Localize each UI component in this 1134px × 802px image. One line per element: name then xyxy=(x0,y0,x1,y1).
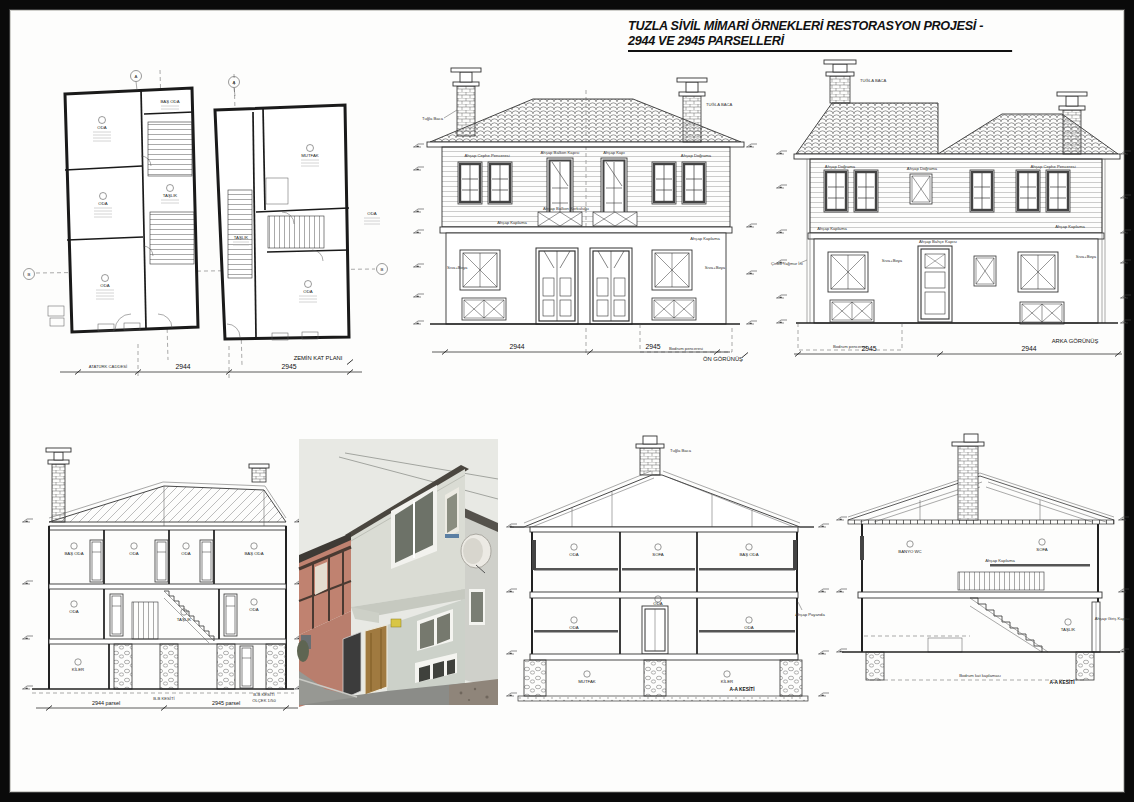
svg-text:ODA: ODA xyxy=(249,607,258,612)
sheet-title: TUZLA SİVİL MİMARİ ÖRNEKLERİ RESTORASYON… xyxy=(628,18,1012,52)
aa1-caption: A-A KESİTİ xyxy=(729,686,755,692)
front-dim-2945: 2945 xyxy=(645,343,660,350)
room-label: TAŞLIK xyxy=(1061,619,1076,632)
parcel-2944-walls xyxy=(48,88,198,332)
svg-text:SOFA: SOFA xyxy=(1036,547,1048,552)
room-label: ODA xyxy=(249,599,258,612)
panel-section-bb: BAŞ ODA ODA ODA BAŞ ODA ODA TAŞLIK ODA K… xyxy=(14,434,306,726)
annotation: Ahşap Doğrama xyxy=(907,166,938,171)
panel-front-elevation: Tuğla Baca TUĞLA BACA Ahşap Cephe Pencer… xyxy=(400,62,768,380)
annotation: Sıva+Boya xyxy=(447,265,468,270)
svg-text:ODA: ODA xyxy=(97,125,106,130)
svg-text:ODA: ODA xyxy=(569,552,578,557)
parcel-2945-walls xyxy=(215,105,349,340)
annotation: Çinko Yağmur İni xyxy=(771,261,803,266)
ground-floor-plan: A A B B ODA ODA ODA xyxy=(20,60,398,392)
bb-roof-vent xyxy=(249,464,269,482)
room-label: ODA xyxy=(181,543,190,556)
annotation: Ahşap Doğrama xyxy=(681,153,712,158)
annotation: Bodrum penceresi xyxy=(669,346,703,351)
bb-caption: B-B KESİTİ xyxy=(153,696,174,701)
room-label: BAŞ ODA xyxy=(739,544,758,557)
bb-scale-label: ÖLÇEK 1/50 xyxy=(252,698,276,703)
annotation: Ahşap Kaplama xyxy=(985,558,1015,563)
svg-text:ODA: ODA xyxy=(653,601,662,606)
aa2-roof xyxy=(848,473,1114,524)
room-label: BANYO WC xyxy=(898,541,921,554)
room-label: KİLER xyxy=(72,659,84,672)
svg-text:ODA: ODA xyxy=(129,551,138,556)
svg-text:TAŞLIK: TAŞLIK xyxy=(177,617,192,622)
svg-text:ODA: ODA xyxy=(569,625,578,630)
svg-text:TAŞLIK: TAŞLIK xyxy=(163,193,178,198)
aa2-structure xyxy=(858,524,1102,652)
svg-text:SOFA: SOFA xyxy=(652,552,664,557)
rear-dim-2944: 2944 xyxy=(1021,345,1036,352)
svg-text:KİLER: KİLER xyxy=(721,679,733,684)
annotation: Ahşap Payanda xyxy=(795,612,825,617)
axis-bubble: A xyxy=(131,71,142,91)
panel-site-photo xyxy=(299,439,498,705)
section-aa1: Tuğla Baca xyxy=(502,432,830,722)
chimney-label: TUĞLA BACA xyxy=(860,78,887,83)
drawing-sheet: TUZLA SİVİL MİMARİ ÖRNEKLERİ RESTORASYON… xyxy=(0,0,1134,802)
bb-scale-label: B-B KESİTİ xyxy=(253,692,274,697)
bb-chimney xyxy=(46,448,71,522)
bb-dim-2945: 2945 parsel xyxy=(212,700,240,706)
svg-text:ODA: ODA xyxy=(367,211,376,216)
svg-text:TAŞLIK: TAŞLIK xyxy=(1061,627,1076,632)
room-label: BAŞ ODA xyxy=(64,543,83,556)
annotation: Sıva+Boya xyxy=(1076,254,1097,259)
annotation: Ahşap Kaplama xyxy=(690,236,720,241)
paper: TUZLA SİVİL MİMARİ ÖRNEKLERİ RESTORASYON… xyxy=(9,9,1125,793)
panel-rear-elevation: TUĞLA BACA Ahşap Doğrama Ahşap Doğrama A… xyxy=(770,58,1132,380)
panel-ground-floor-plan: A A B B ODA ODA ODA xyxy=(20,60,398,392)
axis-bubble: A xyxy=(229,77,240,97)
rear-dim-2945: 2945 xyxy=(861,345,876,352)
room-label: KİLER xyxy=(721,671,733,684)
svg-text:BAŞ ODA: BAŞ ODA xyxy=(64,551,83,556)
annotation: Ahşap Doğrama xyxy=(825,164,856,169)
bb-dim-2944: 2944 parsel xyxy=(92,700,120,706)
chimney-label: TUĞLA BACA xyxy=(706,102,733,107)
plan-caption: ZEMİN KAT PLANI xyxy=(294,355,343,361)
axis-bubble: B xyxy=(24,269,35,280)
room-label: SOFA xyxy=(652,544,664,557)
svg-text:ODA: ODA xyxy=(303,289,312,294)
plan-dimension-line: ATATÜRK CADDESİ 2944 2945 xyxy=(60,344,362,378)
room-label: ODA xyxy=(569,544,578,557)
aa1-chimney xyxy=(636,436,664,475)
aa2-chimney xyxy=(952,434,984,520)
svg-text:A: A xyxy=(135,74,138,79)
section-bb: BAŞ ODA ODA ODA BAŞ ODA ODA TAŞLIK ODA K… xyxy=(14,434,306,726)
rear-chimney-left xyxy=(824,60,856,103)
svg-text:BAŞ ODA: BAŞ ODA xyxy=(244,551,263,556)
section-aa2: BANYO WC SOFA TAŞLIK Ahşap Kaplama Ahşap… xyxy=(830,434,1132,716)
rear-caption: ARKA GÖRÜNÜŞ xyxy=(1052,338,1099,344)
svg-text:BANYO WC: BANYO WC xyxy=(898,549,921,554)
annotation: Ahşap Cephe Penceresi xyxy=(1030,164,1075,169)
svg-text:BAŞ ODA: BAŞ ODA xyxy=(160,99,179,104)
annotation: Ahşap Giriş Kapısı xyxy=(1095,616,1130,621)
room-label: ODA xyxy=(364,211,380,224)
annotation: Ahşap Balkon Korkuluğu xyxy=(543,206,590,211)
svg-text:B: B xyxy=(28,272,31,277)
street-label: ATATÜRK CADDESİ xyxy=(89,364,127,369)
room-label: MUTFAK xyxy=(578,671,596,684)
annotation: Sıva+Boya xyxy=(882,258,903,263)
room-label: ODA xyxy=(69,601,78,614)
svg-text:A: A xyxy=(233,80,236,85)
svg-text:ODA: ODA xyxy=(100,283,109,288)
chimney-label: Tuğla Baca xyxy=(422,116,444,121)
room-label: ODA xyxy=(744,617,753,630)
annotation: Ahşap Cephe Penceresi xyxy=(464,153,509,158)
plan-dim-2944: 2944 xyxy=(175,363,190,370)
annotation: Ahşap Kapı xyxy=(603,150,625,155)
svg-text:BAŞ ODA: BAŞ ODA xyxy=(739,552,758,557)
panel-section-aa2: BANYO WC SOFA TAŞLIK Ahşap Kaplama Ahşap… xyxy=(830,434,1132,716)
room-label: SOFA xyxy=(1036,539,1048,552)
svg-text:B: B xyxy=(381,267,384,272)
axis-bubble: B xyxy=(377,264,388,275)
bb-roof xyxy=(49,482,286,526)
panel-section-aa1: Tuğla Baca xyxy=(502,432,830,722)
aa1-roof xyxy=(510,471,814,527)
annotation: Ahşap Kaplama xyxy=(497,220,527,225)
front-elevation: Tuğla Baca TUĞLA BACA Ahşap Cephe Pencer… xyxy=(400,62,768,380)
svg-text:TAŞLIK: TAŞLIK xyxy=(234,235,249,240)
svg-text:ODA: ODA xyxy=(98,201,107,206)
site-photo xyxy=(299,439,498,705)
annotation: Ahşap Bahçe Kapısı xyxy=(919,239,957,244)
annotation: Ahşap Balkon Kapısı xyxy=(541,150,580,155)
svg-text:ODA: ODA xyxy=(69,609,78,614)
chimney-label: Tuğla Baca xyxy=(670,448,692,453)
aa1-foundation xyxy=(518,660,808,701)
aa2-caption: A-A KESİTİ xyxy=(1049,679,1075,685)
aa2-stair xyxy=(970,598,1048,652)
plan-dim-2945: 2945 xyxy=(281,363,296,370)
rear-elevation: TUĞLA BACA Ahşap Doğrama Ahşap Doğrama A… xyxy=(770,58,1132,380)
annotation: Ahşap Kaplama xyxy=(817,226,847,231)
svg-text:MUTFAK: MUTFAK xyxy=(301,153,319,158)
svg-text:KİLER: KİLER xyxy=(72,667,84,672)
svg-text:ODA: ODA xyxy=(744,625,753,630)
svg-text:MUTFAK: MUTFAK xyxy=(578,679,596,684)
room-label: ODA xyxy=(569,617,578,630)
front-floor-band xyxy=(440,227,732,233)
room-label: ODA xyxy=(129,543,138,556)
annotation: Bodrum kat kaplaması xyxy=(959,673,1001,678)
bb-stair xyxy=(132,591,214,643)
annotation: Sıva+Boya xyxy=(705,265,726,270)
front-caption: ÖN GÖRÜNÜŞ xyxy=(703,356,743,362)
annotation: Ahşap Kaplama xyxy=(1055,224,1085,229)
room-label: BAŞ ODA xyxy=(244,543,263,556)
front-dim-2944: 2944 xyxy=(509,343,524,350)
svg-text:ODA: ODA xyxy=(181,551,190,556)
